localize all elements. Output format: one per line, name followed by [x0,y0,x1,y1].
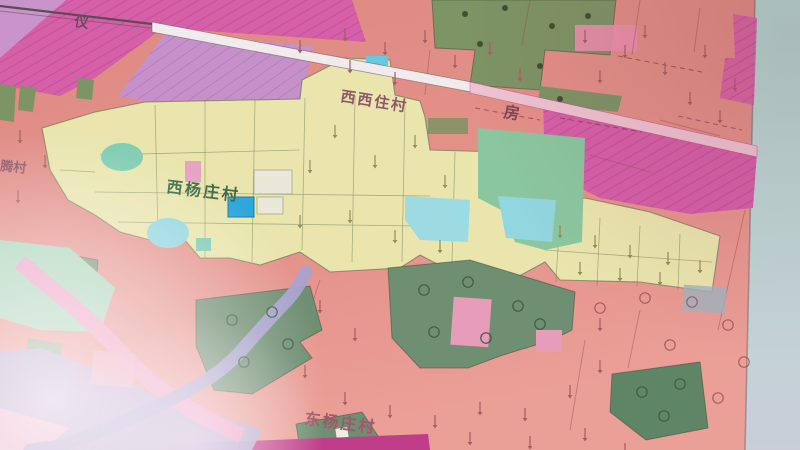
map-canvas: 仪 西西住村 房 西杨庄村 东杨庄村 腾村 [0,0,800,450]
photo-light-overlays [0,0,800,450]
planning-map-photo: 仪 西西住村 房 西杨庄村 东杨庄村 腾村 [0,0,800,450]
